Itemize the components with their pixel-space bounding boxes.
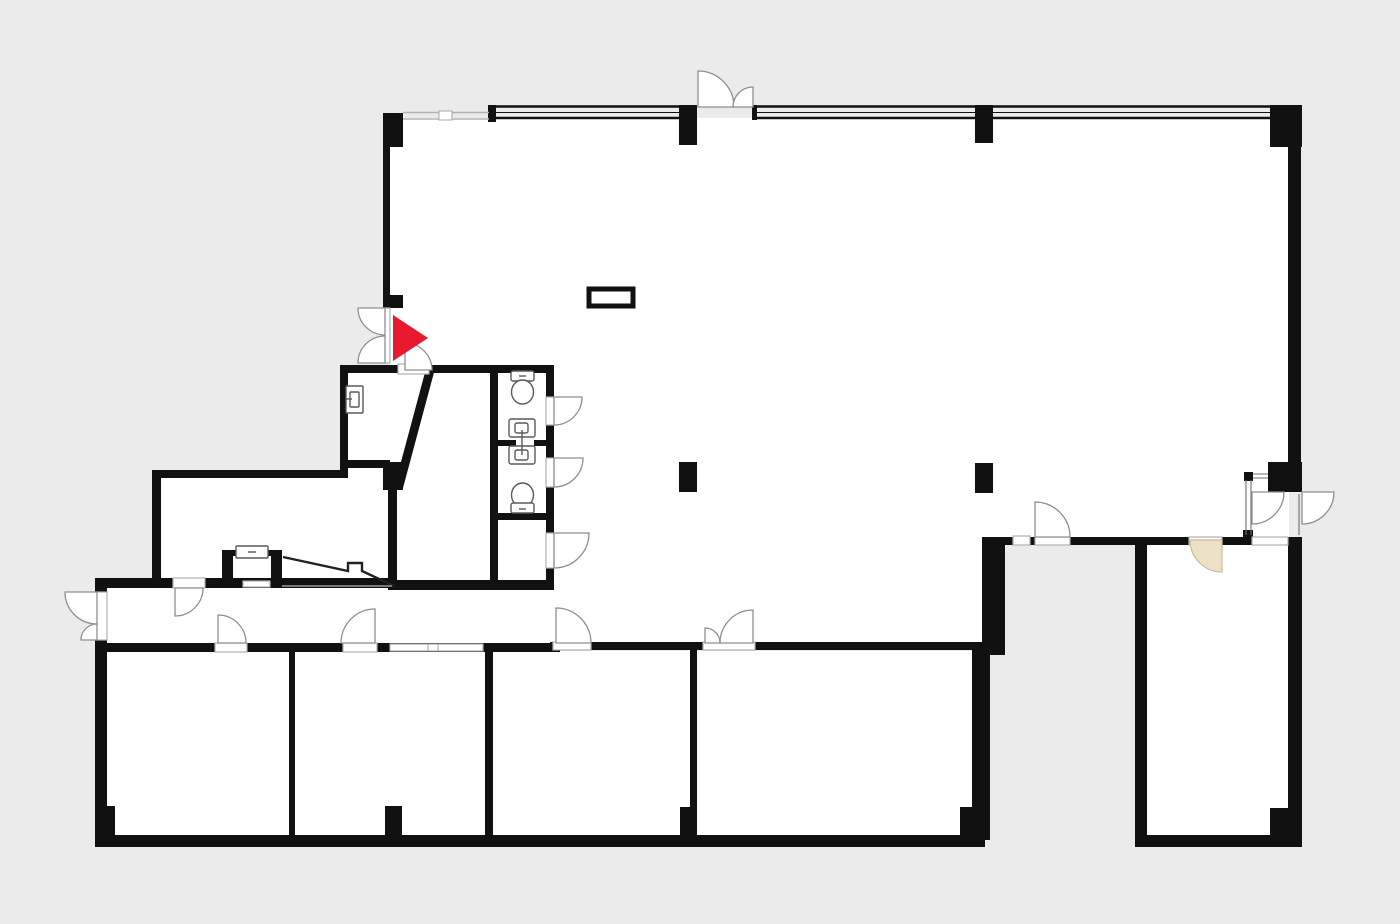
threshold-vestibule xyxy=(1252,537,1288,545)
wall-stall-divider1-a xyxy=(498,440,516,446)
bottom-rooms-floor xyxy=(107,651,972,837)
wall-east-upper xyxy=(1288,147,1301,462)
railing-tick xyxy=(439,111,452,120)
wc-core-floor xyxy=(348,373,546,581)
wall-br-room-west xyxy=(1135,537,1147,845)
threshold-stall1 xyxy=(546,397,554,425)
pilaster-1 xyxy=(107,806,115,836)
wall-stall-west xyxy=(490,368,498,580)
notch-window xyxy=(1013,536,1030,545)
wall-stair-room-north xyxy=(152,470,348,478)
wall-wc-south xyxy=(388,580,554,590)
pilaster-4 xyxy=(960,807,972,836)
wall-south-mid xyxy=(550,642,1005,650)
closet-counter-icon xyxy=(236,546,268,558)
wall-east-block xyxy=(1268,462,1302,492)
wall-south-main xyxy=(95,835,985,847)
threshold-wc-lower xyxy=(546,533,554,568)
pilaster-2 xyxy=(385,806,402,836)
wall-stall-divider1-b xyxy=(534,440,554,446)
wall-divider-2 xyxy=(485,648,493,838)
wall-west-lower xyxy=(95,645,107,847)
threshold-room2-door xyxy=(343,643,377,652)
wall-east-lower xyxy=(1288,537,1302,845)
interior-column-2 xyxy=(975,463,993,493)
room2-glass-band xyxy=(390,644,483,651)
threshold-closet-slider xyxy=(243,581,270,587)
toilet-icon-1 xyxy=(511,371,534,404)
wall-divider-1 xyxy=(289,648,295,838)
main-hall-lower-strip-floor xyxy=(554,537,982,645)
floor-plan-drawing xyxy=(0,0,1400,924)
wall-closet-east xyxy=(271,550,282,586)
wall-room4-east xyxy=(972,645,990,840)
facade-column-2 xyxy=(975,105,993,143)
pilaster-3 xyxy=(680,807,693,836)
threshold-stair-room-door xyxy=(173,578,205,588)
facade-column-1 xyxy=(679,105,697,145)
interior-column-1 xyxy=(679,462,697,492)
threshold-stall2 xyxy=(546,458,554,487)
wall-br-room-pillar xyxy=(1270,808,1302,837)
wall-ne-corner xyxy=(1270,105,1302,147)
wall-wc-inner-south xyxy=(340,460,390,468)
wall-west-stub xyxy=(383,295,403,308)
wall-notch-vertical xyxy=(982,537,1005,655)
bottom-right-room-floor xyxy=(1147,545,1288,836)
wall-stall-divider2 xyxy=(498,513,554,520)
threshold-room1-door xyxy=(215,643,247,652)
hall-object-outline xyxy=(589,289,633,306)
facade-jamb xyxy=(488,105,496,122)
vestibule-post-top xyxy=(1244,472,1253,481)
washbasin-icon xyxy=(346,386,363,413)
wall-wc-inner-vertical xyxy=(388,488,397,586)
wall-stair-room-west xyxy=(152,470,161,580)
floor-plan-canvas xyxy=(0,0,1400,924)
wall-west-upper xyxy=(383,113,390,308)
threshold-notch-door xyxy=(1035,537,1070,545)
toilet-icon-2 xyxy=(511,483,534,513)
